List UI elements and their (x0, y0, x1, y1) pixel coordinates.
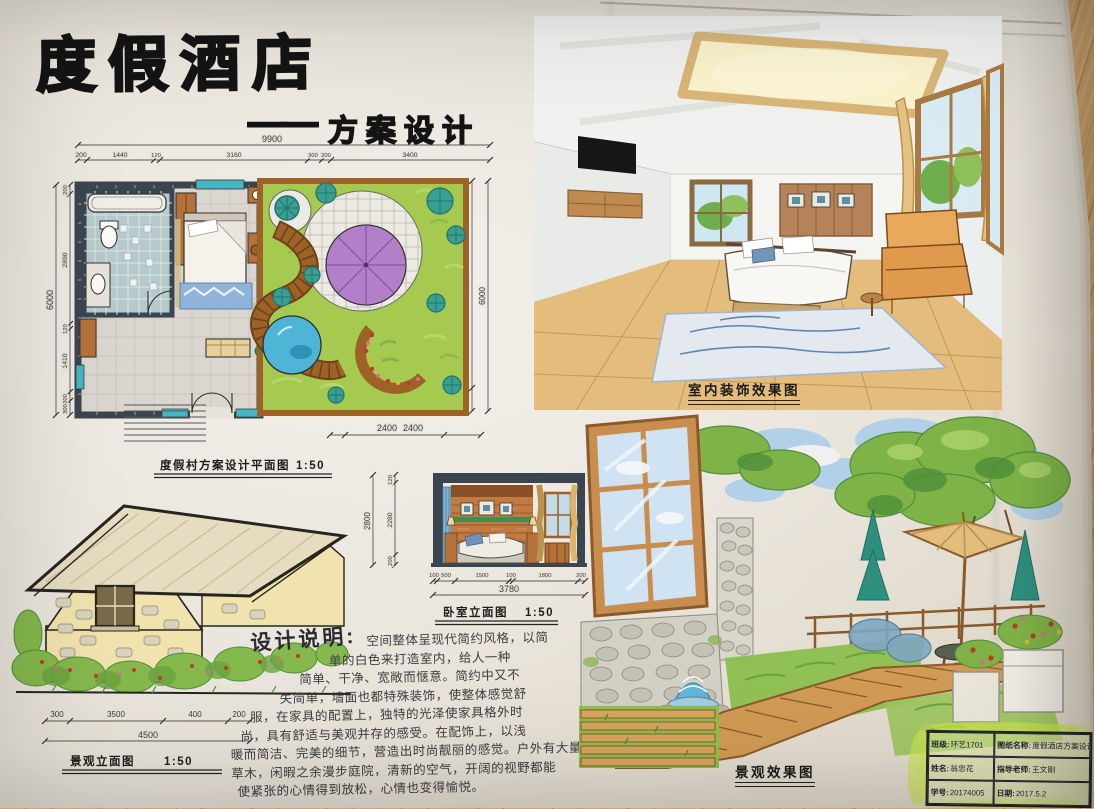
window-wall (587, 416, 707, 616)
dim-label: 9900 (262, 134, 282, 144)
board-title: 度假酒店 (36, 14, 325, 104)
titleblock-cell: 学号:20174005 (928, 780, 994, 805)
dim-label: 6000 (478, 287, 487, 305)
field-label: 班级: (931, 738, 949, 749)
landscape-rendering (575, 410, 1071, 772)
plan-caption-text: 度假村方案设计平面图 (160, 458, 290, 472)
dim-label: 1500 (476, 573, 489, 579)
title-block: 班级:环艺1701 图纸名称:度假酒店方案设计 姓名:翁忠花 指导老师:王文刚 … (925, 730, 1092, 808)
field-value: 2017.5.2 (1016, 789, 1046, 798)
field-value: 度假酒店方案设计 (1032, 740, 1090, 752)
elevation-caption: 景观立面图 1:50 (62, 754, 222, 774)
plan-courtyard (260, 181, 466, 413)
design-notes: 设计说明:空间整体呈现代简约风格，以简 单的白色来打造室内，给人一种 简单、干净… (226, 625, 625, 802)
dim-label: 300 (63, 404, 69, 414)
dim-label: 200 (63, 185, 69, 195)
field-label: 学号: (931, 786, 949, 797)
titleblock-cell: 指导老师:王文刚 (994, 757, 1090, 782)
dim-label: 300 (308, 153, 318, 159)
section-bottom-dimensions: 100 500 1500 100 1800 200 3780 (429, 573, 588, 598)
design-notes-heading: 设计说明: (250, 628, 357, 654)
dim-label: 2800 (363, 512, 372, 530)
dim-label: 200 (388, 556, 394, 566)
section-caption-text: 卧室立面图 (443, 605, 508, 619)
field-label: 图纸名称: (997, 739, 1031, 750)
field-label: 指导老师: (997, 763, 1031, 774)
field-value: 王文刚 (1032, 764, 1056, 775)
dim-label: 1410 (62, 353, 69, 368)
dim-label: 1440 (112, 152, 127, 159)
dim-label: 1800 (539, 573, 552, 579)
dim-label: 3780 (499, 584, 519, 594)
photo-of-design-board: { "title": {"main": "度假酒店", "dash": "——"… (0, 0, 1094, 808)
dim-label: 3500 (107, 710, 125, 719)
interior-caption: 室内装饰效果图 (688, 379, 800, 405)
field-value: 环艺1701 (950, 739, 983, 750)
elevation-caption-text: 景观立面图 (69, 754, 135, 768)
design-notes-line: 空间整体呈现代简约风格，以简 (366, 630, 548, 648)
landscape-caption: 景观效果图 (735, 761, 815, 787)
plan-scale-text: 1:50 (296, 460, 325, 472)
dim-label: 200 (321, 153, 331, 159)
plan-bedroom (76, 180, 266, 419)
field-label: 姓名: (931, 762, 949, 773)
titleblock-cell: 图纸名称:度假酒店方案设计 (994, 733, 1090, 758)
elevation-dimensions: 300 3500 400 200 4500 (42, 710, 253, 744)
titleblock-cell: 班级:环艺1701 (928, 732, 994, 757)
dim-label: 100 (429, 573, 439, 579)
dim-label: 3400 (402, 152, 417, 159)
section-room (431, 473, 587, 567)
section-scale-text: 1:50 (525, 607, 554, 619)
dim-label: 3160 (226, 152, 241, 159)
field-label: 日期: (997, 787, 1015, 798)
titleblock-cell: 姓名:翁忠花 (928, 756, 994, 781)
dim-label: 2400 (403, 423, 423, 433)
dim-label: 120 (151, 153, 161, 159)
interior-rendering (520, 2, 1016, 410)
dim-label: 200 (75, 152, 87, 159)
dim-label: 120 (63, 324, 69, 334)
elevation-scale-text: 1:50 (164, 756, 193, 768)
field-value: 翁忠花 (950, 763, 974, 774)
interior-caption-text: 室内装饰效果图 (688, 379, 800, 401)
dim-label: 200 (63, 394, 69, 404)
landscape-caption-text: 景观效果图 (735, 761, 815, 783)
dim-label: 2280 (387, 512, 394, 527)
dim-label: 500 (441, 573, 451, 579)
dim-label: 6000 (45, 290, 55, 310)
dim-label: 100 (506, 573, 516, 579)
dim-label: 4500 (138, 730, 158, 740)
dim-label: 400 (188, 710, 202, 719)
dim-label: 300 (50, 710, 64, 719)
field-value: 20174005 (950, 788, 985, 797)
section-caption: 卧室立面图 1:50 (435, 605, 558, 625)
dim-label: 120 (388, 475, 394, 485)
plan-caption: 度假村方案设计平面图 1:50 (154, 458, 332, 478)
titleblock-cell: 日期:2017.5.2 (993, 781, 1089, 806)
dim-label: 2890 (62, 252, 69, 267)
